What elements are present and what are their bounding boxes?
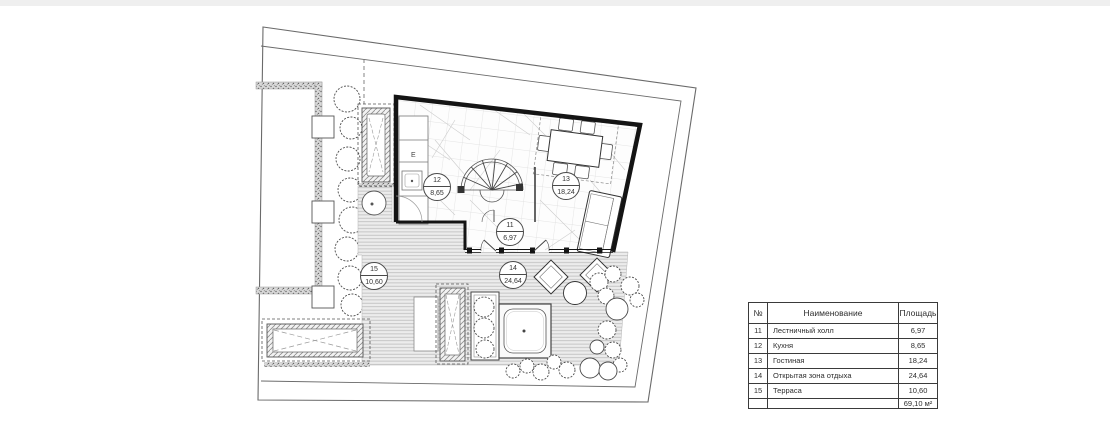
dining-chair xyxy=(580,121,595,135)
garden-wall xyxy=(256,82,334,308)
header-area: Площадь xyxy=(899,303,937,323)
total-name-empty xyxy=(768,399,899,408)
table-row: 15 Терраса 10,60 xyxy=(749,383,937,398)
row-name: Лестничный холл xyxy=(768,324,899,338)
room-area: 8,65 xyxy=(424,187,450,200)
outdoor-table xyxy=(362,191,386,215)
shrub-planter xyxy=(471,292,499,360)
table-header-row: № Наименование Площадь xyxy=(749,303,937,323)
bench xyxy=(414,297,438,351)
wall-post xyxy=(312,116,334,138)
table-total-row: 69,10 м² xyxy=(749,398,937,408)
table-row: 12 Кухня 8,65 xyxy=(749,338,937,353)
row-num: 12 xyxy=(749,339,768,353)
ottoman xyxy=(564,282,587,305)
appliance-label: E xyxy=(411,152,416,159)
row-name: Открытая зона отдыха xyxy=(768,369,899,383)
room-number: 11 xyxy=(497,219,523,232)
room-label-15: 15 10,60 xyxy=(360,262,388,290)
planter-box-bottom xyxy=(262,319,370,367)
total-num-empty xyxy=(749,399,768,408)
wall-post xyxy=(312,201,334,223)
table-row: 14 Открытая зона отдыха 24,64 xyxy=(749,368,937,383)
table-row: 13 Гостиная 18,24 xyxy=(749,353,937,368)
hot-tub xyxy=(499,304,551,358)
kitchen-sink xyxy=(402,171,422,190)
room-label-11: 11 6,97 xyxy=(496,218,524,246)
row-name: Кухня xyxy=(768,339,899,353)
room-area: 24,64 xyxy=(500,275,526,288)
room-number: 14 xyxy=(500,262,526,275)
row-num: 14 xyxy=(749,369,768,383)
room-number: 12 xyxy=(424,174,450,187)
dining-table xyxy=(547,130,603,168)
area-legend-table: № Наименование Площадь 11 Лестничный хол… xyxy=(748,302,938,409)
room-area: 10,60 xyxy=(361,276,387,289)
row-area: 8,65 xyxy=(899,339,937,353)
planter-box-x xyxy=(436,284,468,364)
table-row: 11 Лестничный холл 6,97 xyxy=(749,323,937,338)
header-num: № xyxy=(749,303,768,323)
dining-chair xyxy=(558,118,573,132)
row-name: Терраса xyxy=(768,384,899,398)
row-area: 18,24 xyxy=(899,354,937,368)
floor-plan-drawing: E xyxy=(0,0,1110,431)
room-label-13: 13 18,24 xyxy=(552,172,580,200)
room-number: 15 xyxy=(361,263,387,276)
floor-plan-page: E xyxy=(0,0,1110,431)
wall-post xyxy=(312,286,334,308)
row-name: Гостиная xyxy=(768,354,899,368)
room-number: 13 xyxy=(553,173,579,186)
room-area: 6,97 xyxy=(497,232,523,245)
room-label-12: 12 8,65 xyxy=(423,173,451,201)
planter-box-left xyxy=(358,104,394,186)
kitchen-cabinets: E xyxy=(399,116,428,224)
room-label-14: 14 24,64 xyxy=(499,261,527,289)
row-area: 6,97 xyxy=(899,324,937,338)
row-num: 15 xyxy=(749,384,768,398)
room-area: 18,24 xyxy=(553,186,579,199)
row-area: 24,64 xyxy=(899,369,937,383)
row-num: 13 xyxy=(749,354,768,368)
row-area: 10,60 xyxy=(899,384,937,398)
total-area-value: 69,10 м² xyxy=(899,399,937,408)
header-name: Наименование xyxy=(768,303,899,323)
row-num: 11 xyxy=(749,324,768,338)
scan-artifact-band xyxy=(0,0,1110,6)
